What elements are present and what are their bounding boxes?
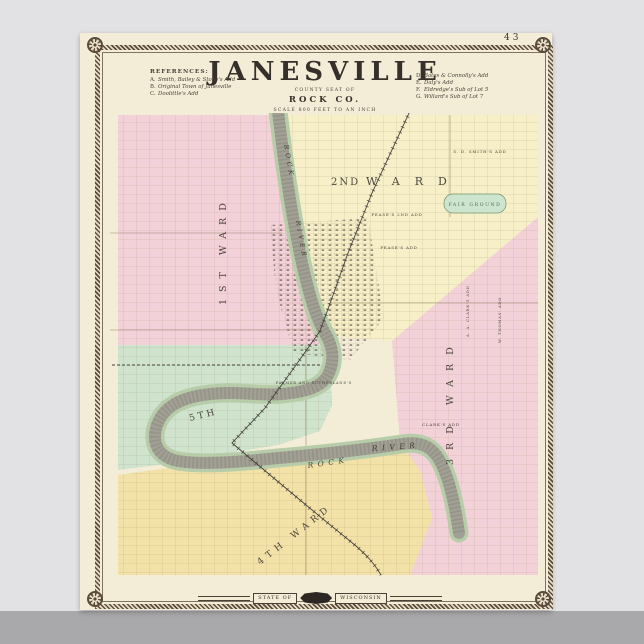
reference-key: G. (416, 94, 424, 101)
border-rosette-top-left (87, 37, 103, 53)
reference-key: C. (150, 91, 158, 98)
addition-label-smith: S. D. SMITH'S ADD (453, 149, 506, 154)
reference-item: C.Doolittle's Add (150, 91, 280, 98)
reference-key: E. (416, 80, 424, 87)
reference-label: Bates & Connolly's Add (424, 73, 488, 79)
reference-label: Daly's Add (424, 80, 453, 86)
reference-item: G.Willard's Sub of Lot 7 (416, 94, 546, 101)
reference-label: Doolittle's Add (158, 91, 198, 97)
reference-item: E.Daly's Add (416, 80, 546, 87)
reference-key: F. (416, 87, 424, 94)
state-banner: STATE OF WISCONSIN (198, 590, 442, 606)
border-rosette-bottom-left (87, 591, 103, 607)
background-floor-strip (0, 611, 644, 644)
references-list-right: D.Bates & Connolly's Add E.Daly's Add F.… (416, 73, 546, 101)
ward-label-1st: 1ST WARD (218, 196, 229, 305)
addition-label-pease-2nd: PEASE'S 2ND ADD (371, 212, 422, 217)
addition-label-palmer: PALMER AND SUTHERLAND'S (276, 381, 352, 385)
city-map: FAIR GROUND 1ST WARD 2ND WARD 3RD WARD 4… (110, 113, 540, 578)
addition-label-aa-clark: A. A. CLARK'S ADD (465, 286, 470, 338)
fairground-label: FAIR GROUND (449, 202, 502, 208)
banner-rule-left (198, 596, 250, 601)
reference-item: A.Smith, Bailey & Stone's Add (150, 77, 280, 84)
banner-ornament (300, 592, 332, 604)
reference-label: Original Town of Janesville (158, 84, 231, 90)
reference-label: Smith, Bailey & Stone's Add (158, 77, 235, 83)
reference-label: Willard's Sub of Lot 7 (424, 94, 483, 100)
addition-label-pease: PEASE'S ADD (380, 245, 417, 250)
city-map-svg: FAIR GROUND 1ST WARD 2ND WARD 3RD WARD 4… (110, 113, 540, 578)
page-number: 43 (504, 33, 521, 43)
reference-item: B.Original Town of Janesville (150, 84, 280, 91)
reference-item: F.Eldredge's Sub of Lot 5 (416, 87, 546, 94)
ward-label-2nd-number: 2ND (331, 177, 360, 188)
reference-key: A. (150, 77, 158, 84)
reference-key: B. (150, 84, 158, 91)
banner-wisconsin: WISCONSIN (335, 593, 387, 604)
reference-item: D.Bates & Connolly's Add (416, 73, 546, 80)
references-header: REFERENCES: (150, 69, 280, 76)
reference-label: Eldredge's Sub of Lot 5 (424, 87, 488, 93)
border-rosette-bottom-right (535, 591, 551, 607)
poster-mockup-scene: 43 JANESVILLE COUNTY SEAT OF ROCK CO. SC… (0, 0, 644, 644)
banner-state-of: STATE OF (253, 593, 297, 604)
banner-rule-right (390, 596, 442, 601)
references-list-left: REFERENCES: A.Smith, Bailey & Stone's Ad… (150, 69, 280, 98)
addition-label-thomas: W. THOMAS' ADD (497, 297, 502, 343)
map-poster: 43 JANESVILLE COUNTY SEAT OF ROCK CO. SC… (80, 33, 552, 610)
reference-key: D. (416, 73, 424, 80)
ward-label-2nd-name: WARD (366, 175, 462, 188)
border-rosette-top-right (535, 37, 551, 53)
addition-label-clark: CLARK'S ADD (422, 422, 460, 427)
ward-label-3rd: 3RD WARD (445, 338, 456, 465)
